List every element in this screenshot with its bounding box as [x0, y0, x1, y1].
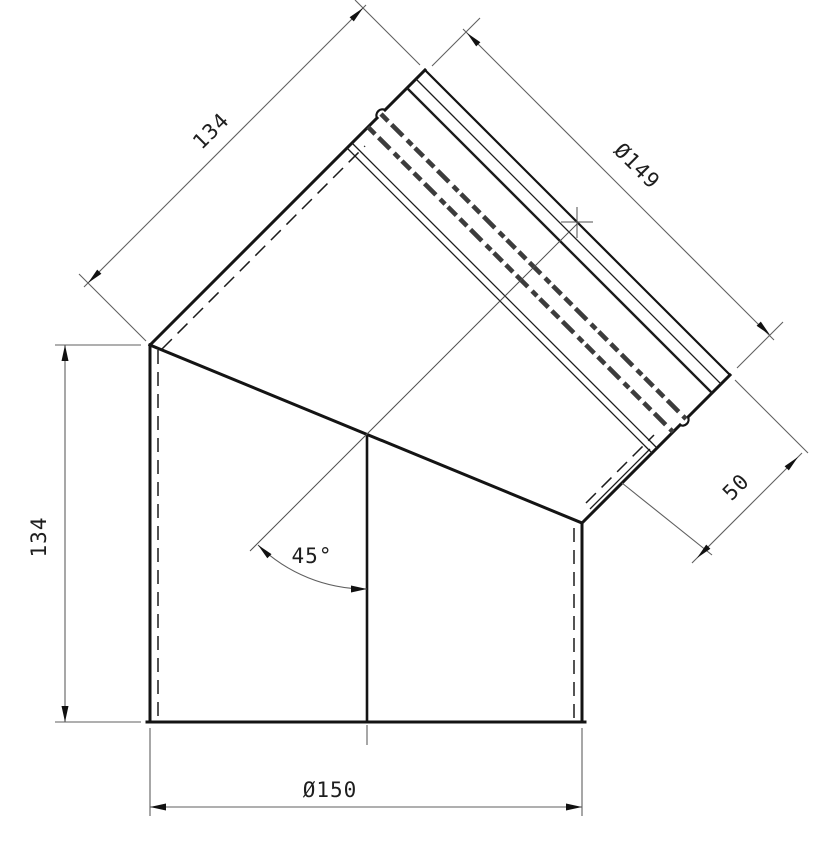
dim-label-bend-angle: 45° [292, 544, 333, 568]
canvas-background [0, 0, 824, 854]
dim-label-lower-length: 134 [27, 517, 51, 558]
elbow-technical-drawing: 134 Ø149 50 134 45° [0, 0, 824, 854]
dim-label-body-diameter: Ø150 [303, 778, 358, 802]
drawing-canvas: 134 Ø149 50 134 45° [0, 0, 824, 854]
